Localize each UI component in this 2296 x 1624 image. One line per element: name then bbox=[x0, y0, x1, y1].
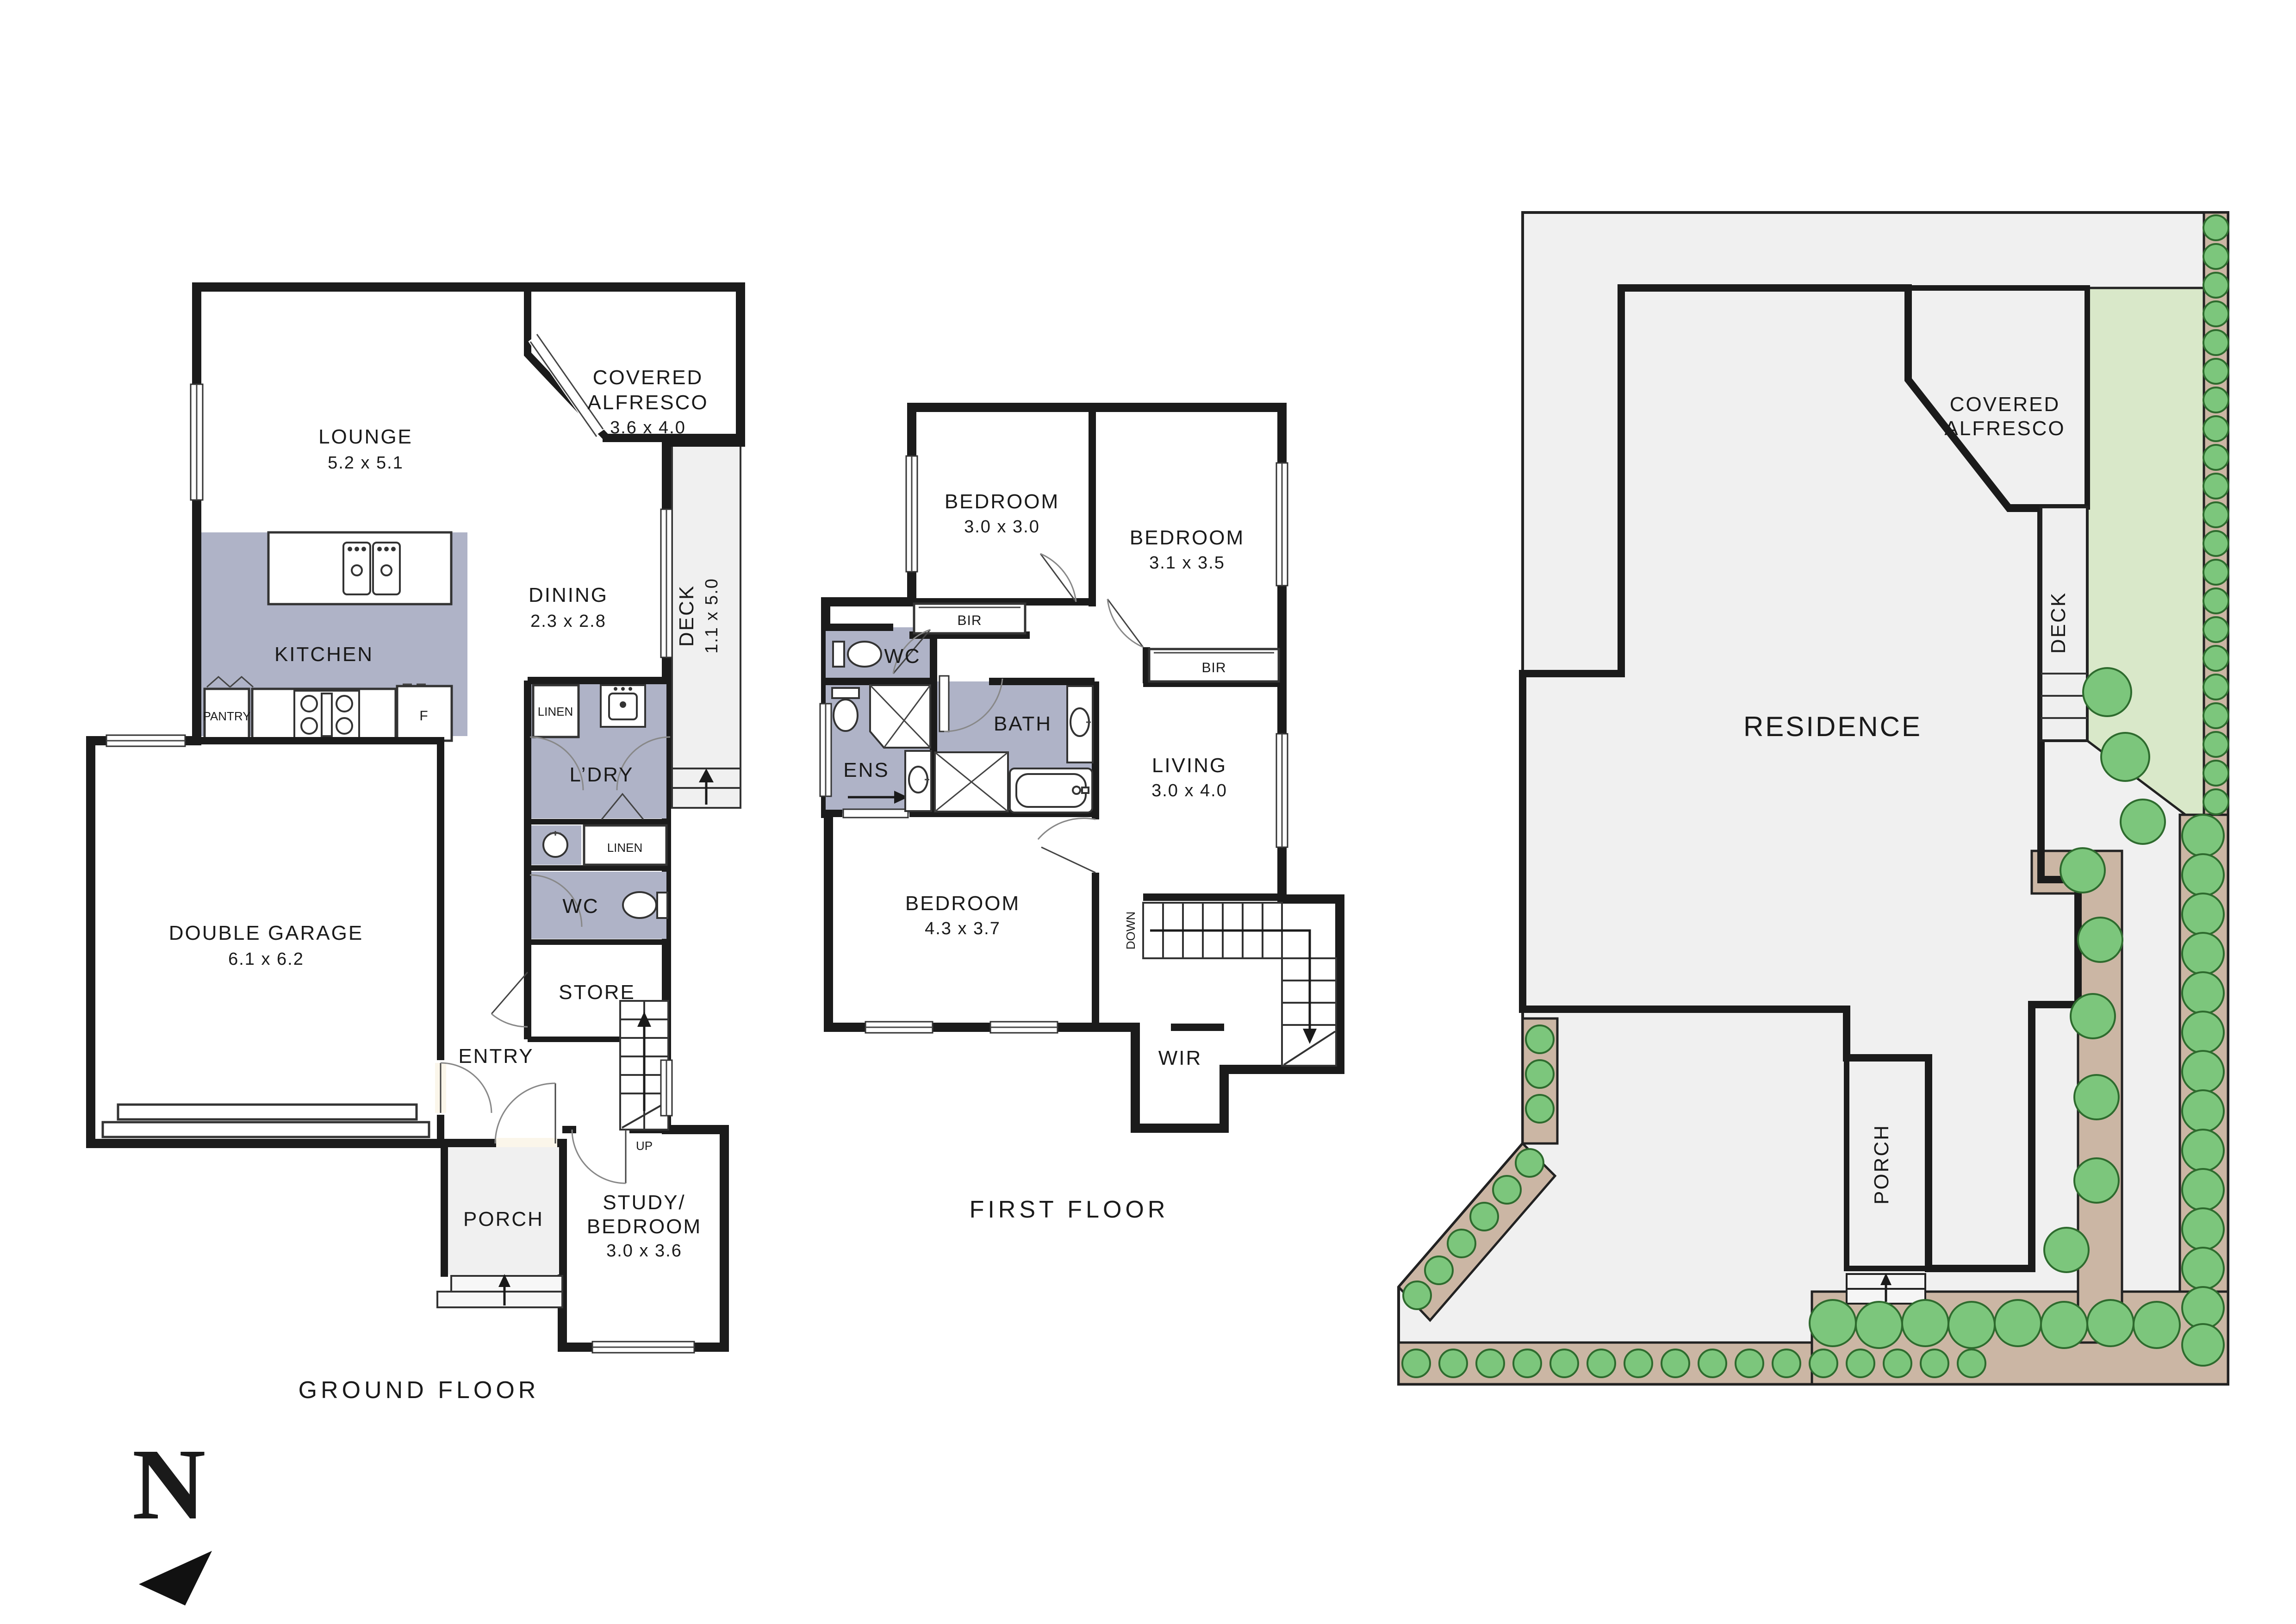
ens-toilet bbox=[832, 688, 859, 731]
bedroom-mid-dims: 3.1 x 3.5 bbox=[1149, 553, 1225, 573]
bedroom-mid-label: BEDROOM bbox=[1130, 526, 1244, 549]
deck-dims: 1.1 x 5.0 bbox=[702, 578, 722, 654]
first-floor-plan: BEDROOM 3.0 x 3.0 BEDROOM 3.1 x 3.5 BIR … bbox=[820, 407, 1340, 1223]
bath-label: BATH bbox=[994, 712, 1052, 735]
alfresco-label-2: ALFRESCO bbox=[587, 391, 708, 414]
lounge-dims: 5.2 x 5.1 bbox=[328, 453, 404, 473]
first-floor-title: FIRST FLOOR bbox=[970, 1196, 1169, 1223]
porch-label: PORCH bbox=[463, 1208, 544, 1230]
site-plan: RESIDENCE COVERED ALFRESCO DECK PORCH bbox=[1399, 212, 2228, 1384]
ground-floor-plan: DECK 1.1 x 5.0 LOUNGE 5.2 x 5.1 COVERED … bbox=[91, 282, 740, 1404]
bedroom-main-door bbox=[1038, 812, 1095, 873]
store-label: STORE bbox=[559, 981, 635, 1004]
site-deck-label: DECK bbox=[2047, 592, 2070, 654]
porch-steps bbox=[437, 1274, 562, 1307]
site-alfresco-label-1: COVERED bbox=[1950, 393, 2060, 416]
linen-b-label: LINEN bbox=[607, 841, 643, 855]
kitchen-label: KITCHEN bbox=[274, 643, 373, 666]
residence-label: RESIDENCE bbox=[1743, 711, 1922, 742]
wc2-label: WC bbox=[884, 645, 921, 668]
garage-label: DOUBLE GARAGE bbox=[169, 922, 363, 944]
bedroom-small-label: BEDROOM bbox=[945, 490, 1059, 513]
site-alfresco-label-2: ALFRESCO bbox=[1944, 417, 2065, 440]
bir-a-label: BIR bbox=[957, 613, 982, 628]
site-porch-label: PORCH bbox=[1870, 1124, 1893, 1205]
garage-entry-door bbox=[435, 1063, 492, 1113]
stairs-down-label: DOWN bbox=[1124, 912, 1138, 949]
ground-alfresco-area bbox=[528, 287, 740, 437]
floorplan-page: DECK 1.1 x 5.0 LOUNGE 5.2 x 5.1 COVERED … bbox=[0, 0, 2296, 1624]
bath-vanity bbox=[1067, 686, 1093, 762]
north-arrow-icon bbox=[139, 1551, 212, 1605]
wir-label: WIR bbox=[1158, 1047, 1202, 1069]
linen-a-label: LINEN bbox=[538, 705, 573, 718]
ens-label: ENS bbox=[843, 759, 889, 781]
bath-shower bbox=[935, 752, 1008, 812]
garage-dims: 6.1 x 6.2 bbox=[228, 949, 304, 969]
stove-cooktop bbox=[294, 691, 359, 739]
study-label-2: BEDROOM bbox=[587, 1215, 702, 1238]
fridge-label: F bbox=[419, 708, 428, 724]
dining-dims: 2.3 x 2.8 bbox=[530, 612, 606, 631]
dining-label: DINING bbox=[529, 584, 608, 606]
lounge-label: LOUNGE bbox=[318, 425, 413, 448]
store-door-leaf bbox=[492, 972, 528, 1014]
living-label: LIVING bbox=[1152, 754, 1227, 777]
study-door bbox=[572, 1130, 626, 1183]
bathtub bbox=[1010, 768, 1092, 812]
front-door bbox=[495, 1083, 557, 1149]
bedroom-small-dims: 3.0 x 3.0 bbox=[964, 517, 1040, 537]
bedroom-main-dims: 4.3 x 3.7 bbox=[925, 919, 1001, 938]
laundry-label: L’DRY bbox=[570, 763, 634, 786]
ens-vanity bbox=[905, 751, 931, 811]
ground-floor-title: GROUND FLOOR bbox=[299, 1377, 540, 1404]
living-dims: 3.0 x 4.0 bbox=[1151, 781, 1227, 800]
bedroom-main-label: BEDROOM bbox=[905, 892, 1020, 915]
floorplan-canvas: DECK 1.1 x 5.0 LOUNGE 5.2 x 5.1 COVERED … bbox=[0, 0, 2296, 1624]
ens-shower bbox=[870, 685, 930, 748]
alfresco-dims: 3.6 x 4.0 bbox=[610, 418, 686, 437]
bir-b-label: BIR bbox=[1201, 660, 1226, 675]
pantry-label: PANTRY bbox=[203, 709, 250, 723]
garage-door-panel bbox=[118, 1105, 417, 1119]
wc-toilet bbox=[623, 892, 667, 918]
study-label-1: STUDY/ bbox=[603, 1191, 685, 1214]
north-arrow: N bbox=[132, 1428, 212, 1605]
entry-label: ENTRY bbox=[458, 1045, 534, 1068]
laundry-trough bbox=[601, 685, 645, 727]
stairs-down bbox=[1143, 903, 1336, 1066]
deck-label: DECK bbox=[675, 585, 698, 647]
wc2-toilet bbox=[833, 642, 881, 667]
wc-label: WC bbox=[562, 895, 599, 918]
study-dims: 3.0 x 3.6 bbox=[606, 1241, 682, 1261]
stairs-up-label: UP bbox=[636, 1139, 653, 1153]
alfresco-label-1: COVERED bbox=[593, 366, 703, 389]
north-label: N bbox=[132, 1428, 206, 1541]
garage-door-panel bbox=[103, 1122, 429, 1137]
